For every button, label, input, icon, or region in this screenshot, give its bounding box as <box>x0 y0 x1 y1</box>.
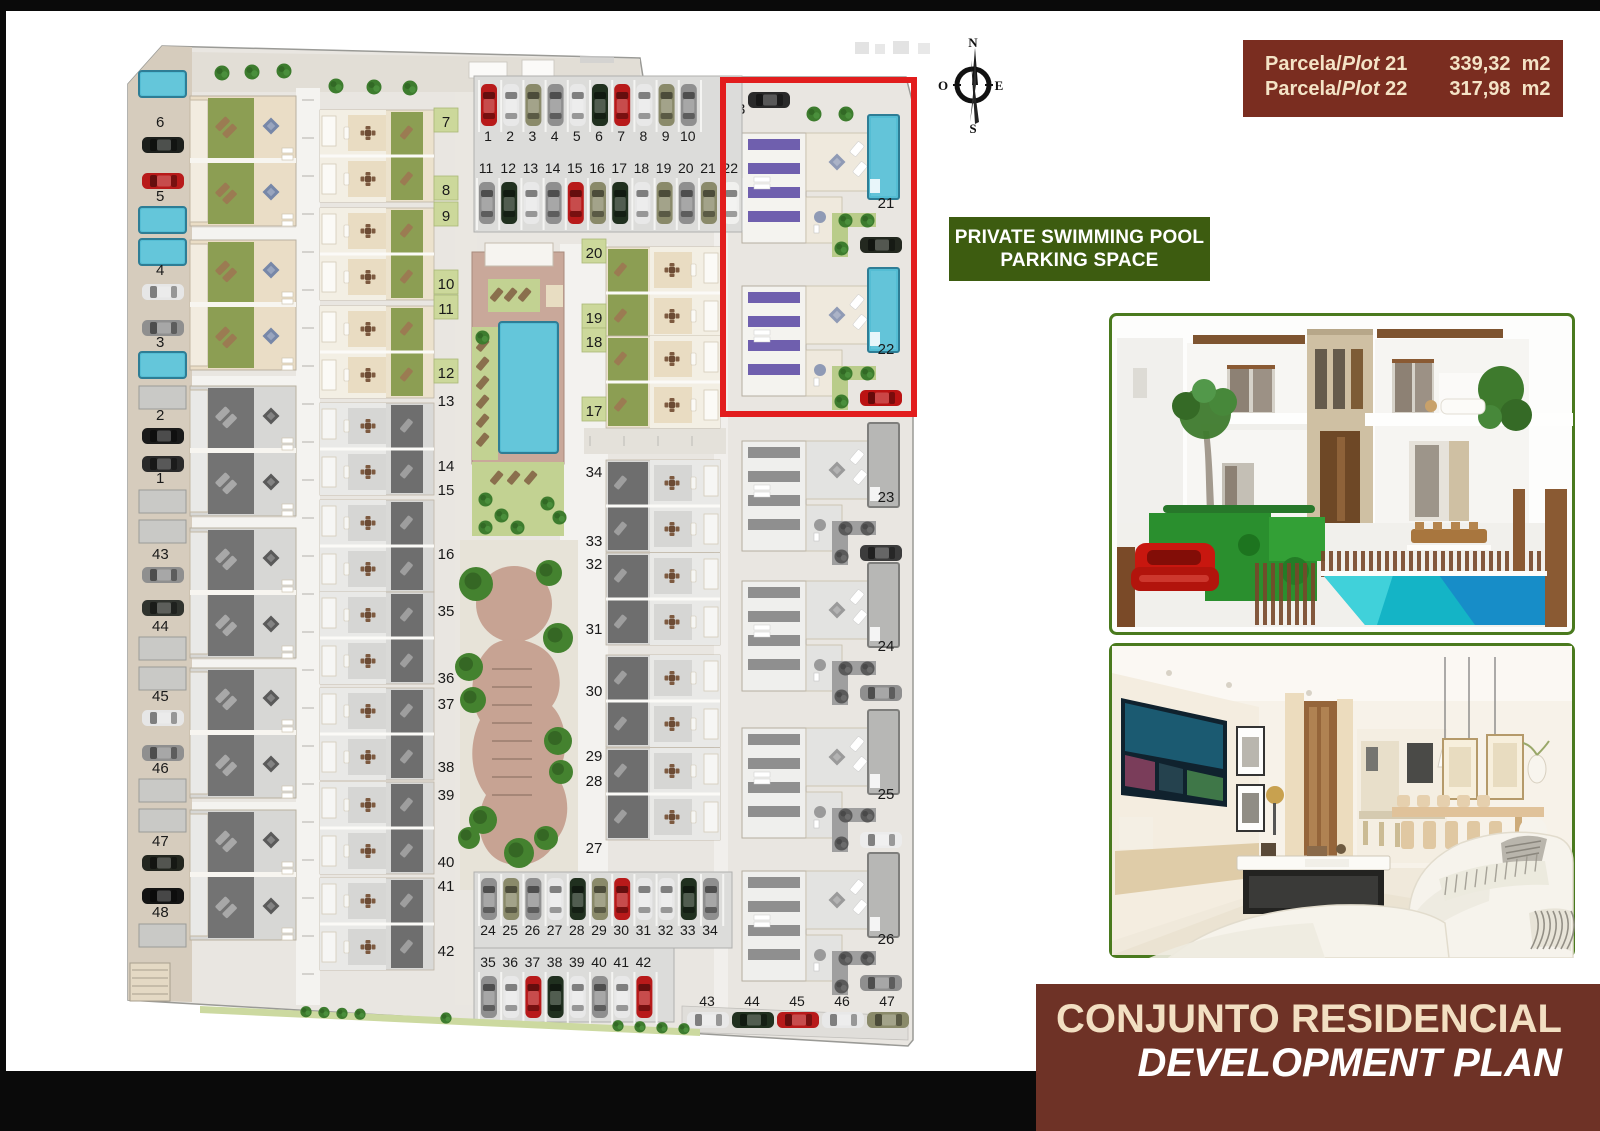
svg-text:41: 41 <box>613 954 629 970</box>
svg-text:9: 9 <box>442 208 450 225</box>
svg-text:2: 2 <box>506 128 514 144</box>
svg-text:17: 17 <box>611 160 627 176</box>
svg-text:30: 30 <box>586 683 603 700</box>
svg-text:46: 46 <box>834 993 850 1009</box>
svg-text:45: 45 <box>152 688 169 705</box>
svg-text:17: 17 <box>586 403 603 420</box>
svg-text:S: S <box>969 121 976 136</box>
svg-text:22: 22 <box>878 341 895 358</box>
svg-text:5: 5 <box>156 188 164 205</box>
svg-text:12: 12 <box>438 365 455 382</box>
svg-text:39: 39 <box>438 787 455 804</box>
svg-text:26: 26 <box>878 931 895 948</box>
svg-text:34: 34 <box>586 464 603 481</box>
svg-text:10: 10 <box>438 276 455 293</box>
svg-text:25: 25 <box>878 786 895 803</box>
svg-text:2: 2 <box>156 407 164 424</box>
svg-text:42: 42 <box>438 943 455 960</box>
svg-text:20: 20 <box>678 160 694 176</box>
svg-text:21: 21 <box>878 195 895 212</box>
svg-text:13: 13 <box>438 393 455 410</box>
svg-text:4: 4 <box>551 128 559 144</box>
svg-text:8: 8 <box>442 182 450 199</box>
svg-text:18: 18 <box>634 160 650 176</box>
svg-text:24: 24 <box>878 638 895 655</box>
svg-text:5: 5 <box>573 128 581 144</box>
svg-text:40: 40 <box>591 954 607 970</box>
svg-text:44: 44 <box>152 618 169 635</box>
svg-text:36: 36 <box>438 670 455 687</box>
svg-text:39: 39 <box>569 954 585 970</box>
svg-text:4: 4 <box>156 262 164 279</box>
svg-text:O: O <box>938 78 948 93</box>
svg-text:18: 18 <box>586 334 603 351</box>
svg-text:35: 35 <box>480 954 496 970</box>
svg-text:6: 6 <box>595 128 603 144</box>
svg-text:14: 14 <box>545 160 561 176</box>
svg-text:12: 12 <box>500 160 516 176</box>
svg-text:13: 13 <box>523 160 539 176</box>
svg-text:20: 20 <box>586 245 603 262</box>
svg-text:3: 3 <box>156 334 164 351</box>
svg-text:19: 19 <box>586 310 603 327</box>
svg-text:31: 31 <box>636 922 652 938</box>
svg-text:8: 8 <box>640 128 648 144</box>
svg-text:38: 38 <box>438 759 455 776</box>
svg-text:44: 44 <box>744 993 760 1009</box>
svg-text:35: 35 <box>438 603 455 620</box>
svg-text:15: 15 <box>567 160 583 176</box>
svg-text:1: 1 <box>484 128 492 144</box>
svg-text:27: 27 <box>586 840 603 857</box>
svg-text:21: 21 <box>700 160 716 176</box>
svg-text:28: 28 <box>569 922 585 938</box>
svg-text:29: 29 <box>586 748 603 765</box>
svg-text:31: 31 <box>586 621 603 638</box>
svg-text:23: 23 <box>878 489 895 506</box>
svg-text:45: 45 <box>789 993 805 1009</box>
svg-text:27: 27 <box>547 922 563 938</box>
svg-text:32: 32 <box>586 556 603 573</box>
svg-text:33: 33 <box>680 922 696 938</box>
svg-text:25: 25 <box>502 922 518 938</box>
svg-text:47: 47 <box>879 993 895 1009</box>
svg-text:7: 7 <box>442 114 450 131</box>
svg-text:19: 19 <box>656 160 672 176</box>
svg-text:47: 47 <box>152 833 169 850</box>
svg-text:14: 14 <box>438 458 455 475</box>
svg-text:26: 26 <box>525 922 541 938</box>
svg-text:30: 30 <box>613 922 629 938</box>
svg-text:1: 1 <box>156 470 164 487</box>
svg-text:38: 38 <box>547 954 563 970</box>
svg-text:43: 43 <box>152 546 169 563</box>
svg-text:28: 28 <box>586 773 603 790</box>
svg-text:36: 36 <box>502 954 518 970</box>
svg-text:N: N <box>968 35 978 50</box>
svg-text:3: 3 <box>529 128 537 144</box>
svg-text:33: 33 <box>586 533 603 550</box>
svg-text:11: 11 <box>438 301 454 318</box>
svg-text:34: 34 <box>702 922 718 938</box>
svg-text:40: 40 <box>438 854 455 871</box>
svg-text:37: 37 <box>438 696 455 713</box>
svg-text:43: 43 <box>699 993 715 1009</box>
svg-text:15: 15 <box>438 482 455 499</box>
svg-text:E: E <box>995 78 1004 93</box>
svg-text:24: 24 <box>480 922 496 938</box>
svg-text:37: 37 <box>525 954 541 970</box>
svg-text:16: 16 <box>589 160 605 176</box>
svg-text:10: 10 <box>680 128 696 144</box>
svg-text:32: 32 <box>658 922 674 938</box>
svg-text:41: 41 <box>438 878 455 895</box>
svg-text:46: 46 <box>152 760 169 777</box>
svg-text:42: 42 <box>636 954 652 970</box>
svg-text:16: 16 <box>438 546 455 563</box>
svg-text:7: 7 <box>617 128 625 144</box>
svg-text:9: 9 <box>662 128 670 144</box>
svg-text:11: 11 <box>479 160 494 176</box>
svg-text:29: 29 <box>591 922 607 938</box>
svg-text:48: 48 <box>152 904 169 921</box>
svg-text:6: 6 <box>156 114 164 131</box>
